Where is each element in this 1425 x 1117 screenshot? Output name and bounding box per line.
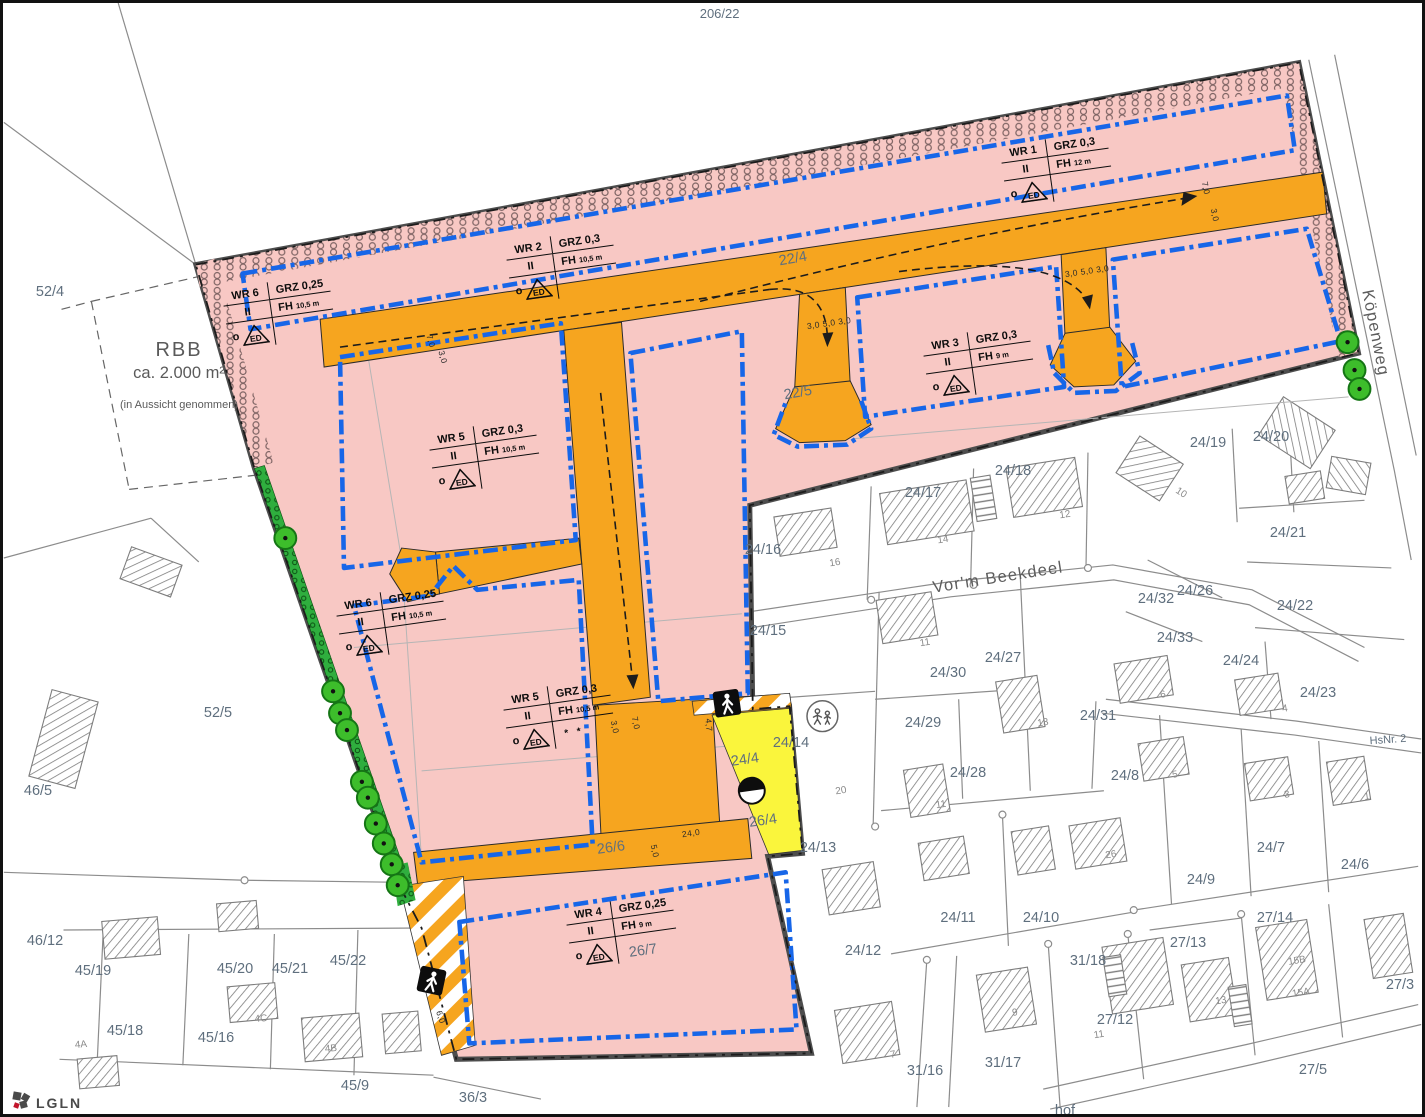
rbb-area: ca. 2.000 m² [89,364,269,383]
pedestrian-path-icon [416,965,447,996]
wr-open: o [438,474,446,487]
pedestrian-crossing-icon [712,689,741,718]
wr-open: o [1010,187,1018,200]
parcel-label-206-22: 206/22 [700,6,740,21]
ed-triangle-icon: ED [447,466,477,490]
svg-text:ED: ED [530,736,543,748]
wr-open: o [232,330,240,343]
ed-triangle-icon: ED [941,372,971,396]
ed-triangle-icon: ED [524,276,554,300]
wr-open: o [512,734,520,747]
svg-text:ED: ED [456,476,469,488]
site-layer [196,63,1371,1060]
wr-open: o [345,640,353,653]
ed-triangle-icon: ED [241,322,271,346]
wr-open: o [575,949,583,962]
plan-canvas: 52/452/546/546/1245/1945/2045/2145/2245/… [0,0,1425,1117]
svg-text:ED: ED [593,951,606,963]
svg-text:ED: ED [950,382,963,394]
rbb-note: (in Aussicht genommen) [89,399,269,411]
svg-text:ED: ED [250,332,263,344]
lgln-logo-icon [12,1091,32,1111]
playground-icon [807,701,838,732]
lgln-logo-text: LGLN [36,1095,82,1111]
ed-triangle-icon: ED [1019,179,1049,203]
svg-text:ED: ED [1028,189,1041,201]
svg-text:ED: ED [533,286,546,298]
wr-open: o [515,284,523,297]
rbb-annotation: RBB ca. 2.000 m² (in Aussicht genommen) [89,339,269,411]
ed-triangle-icon: ED [354,632,384,656]
lgln-logo: LGLN [12,1091,82,1111]
ed-triangle-icon: ED [584,941,614,965]
map-svg [3,3,1422,1114]
wr-open: o [932,380,940,393]
svg-text:ED: ED [363,642,376,654]
ed-triangle-icon: ED [521,726,551,750]
